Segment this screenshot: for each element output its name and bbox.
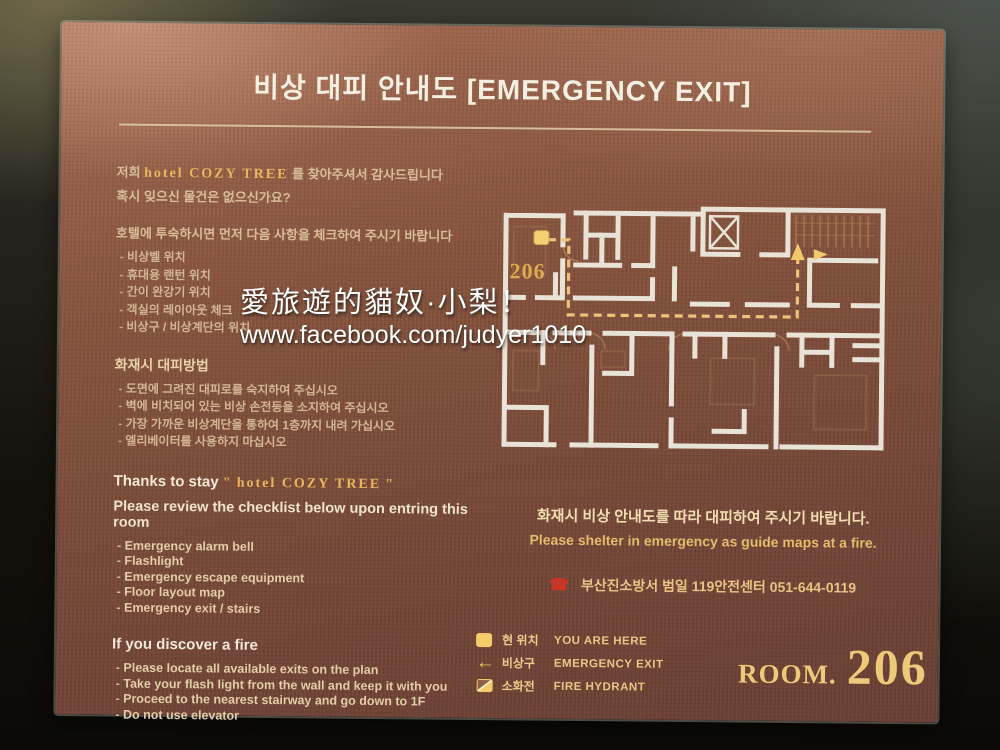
room-marker: [534, 231, 549, 245]
greeting-line: 저희 hotel COZY TREE 를 찾아주셔서 감사드립니다: [116, 163, 508, 187]
hotel-name: hotel COZY TREE: [237, 475, 381, 491]
fire-station-contact: ☎ 부산진소방서 범일 119안전센터 051-644-0119: [477, 574, 929, 598]
exit-arrow-icon: [791, 243, 805, 260]
watermark-line1: 愛旅遊的貓奴·小梨！: [240, 286, 586, 320]
lost-items-line: 혹시 잊으신 물건은 없으신가요?: [116, 187, 508, 210]
legend-kr-label: 비상구: [502, 654, 554, 671]
hotel-name: hotel COZY TREE: [144, 166, 288, 182]
thanks-quote-open: ": [223, 475, 233, 490]
legend-kr-label: 현 위치: [502, 631, 554, 648]
legend: 현 위치 YOU ARE HERE ← 비상구 EMERGENCY EXIT 소…: [476, 628, 664, 699]
emergency-exit-arrow-icon: ←: [476, 656, 502, 670]
legend-en-label: EMERGENCY EXIT: [554, 657, 664, 670]
intro-block: 저희 hotel COZY TREE 를 찾아주셔서 감사드립니다 혹시 잊으신…: [116, 163, 509, 247]
room-number-display: ROOM.206: [664, 636, 929, 697]
review-line: Please review the checklist below upon e…: [113, 498, 505, 534]
greeting-prefix: 저희: [116, 165, 140, 180]
notice-korean: 화재시 비상 안내도를 따라 대피하여 주시기 바랍니다.: [477, 504, 929, 529]
thanks-line: Thanks to stay " hotel COZY TREE ": [114, 472, 506, 494]
elevator-shaft: [710, 216, 738, 248]
background-wall-band: [942, 0, 1000, 540]
phone-icon: ☎: [549, 577, 569, 594]
english-checklist: Emergency alarm bell Flashlight Emergenc…: [116, 538, 505, 619]
thanks-quote-close: ": [385, 477, 395, 492]
check-request-line: 호텔에 투숙하시면 먼저 다음 사항을 체크하여 주시기 바랍니다: [116, 224, 508, 247]
notice-english: Please shelter in emergency as guide map…: [477, 531, 929, 551]
discover-fire-item: Do not use elevator: [115, 707, 503, 726]
room-word: ROOM.: [738, 659, 837, 690]
legend-en-label: YOU ARE HERE: [554, 634, 647, 647]
discover-fire-heading: If you discover a fire: [112, 636, 504, 657]
legend-row-you-are-here: 현 위치 YOU ARE HERE: [476, 628, 664, 653]
room-number: 206: [847, 639, 929, 696]
room-marker-label: 206: [510, 258, 546, 283]
discover-fire-list: Please locate all available exits on the…: [115, 661, 504, 727]
watermark: 愛旅遊的貓奴·小梨！ www.facebook.com/judyer1010: [240, 286, 586, 350]
you-are-here-icon: [476, 633, 502, 647]
left-text-column: 저희 hotel COZY TREE 를 찾아주셔서 감사드립니다 혹시 잊으신…: [111, 163, 508, 727]
title-divider: [119, 124, 871, 133]
legend-row-emergency-exit: ← 비상구 EMERGENCY EXIT: [476, 651, 664, 676]
greeting-suffix: 를 찾아주셔서 감사드립니다: [292, 166, 443, 182]
thanks-prefix: Thanks to stay: [114, 472, 219, 490]
emergency-exit-sign: 비상 대피 안내도 [EMERGENCY EXIT] 저희 hotel COZY…: [55, 22, 944, 722]
fire-station-text: 부산진소방서 범일 119안전센터 051-644-0119: [581, 577, 856, 596]
notice-block: 화재시 비상 안내도를 따라 대피하여 주시기 바랍니다. Please she…: [477, 504, 929, 551]
fire-method-item: 엘리베이터를 사용하지 마십시오: [118, 433, 506, 454]
fire-method-list: 도면에 그려진 대피로를 숙지하여 주십시오 벽에 비치되어 있는 비상 손전등…: [118, 380, 507, 454]
fire-method-heading: 화재시 대피방법: [115, 354, 507, 378]
watermark-line2: www.facebook.com/judyer1010: [240, 320, 586, 350]
sign-title: 비상 대피 안내도 [EMERGENCY EXIT]: [61, 64, 943, 112]
stairs-hatching: [796, 215, 874, 248]
legend-en-label: FIRE HYDRANT: [554, 680, 646, 693]
legend-row-fire-hydrant: 소화전 FIRE HYDRANT: [476, 674, 664, 699]
fire-hydrant-icon: [476, 678, 502, 693]
english-checklist-item: Emergency exit / stairs: [116, 600, 504, 619]
legend-kr-label: 소화전: [502, 677, 554, 694]
